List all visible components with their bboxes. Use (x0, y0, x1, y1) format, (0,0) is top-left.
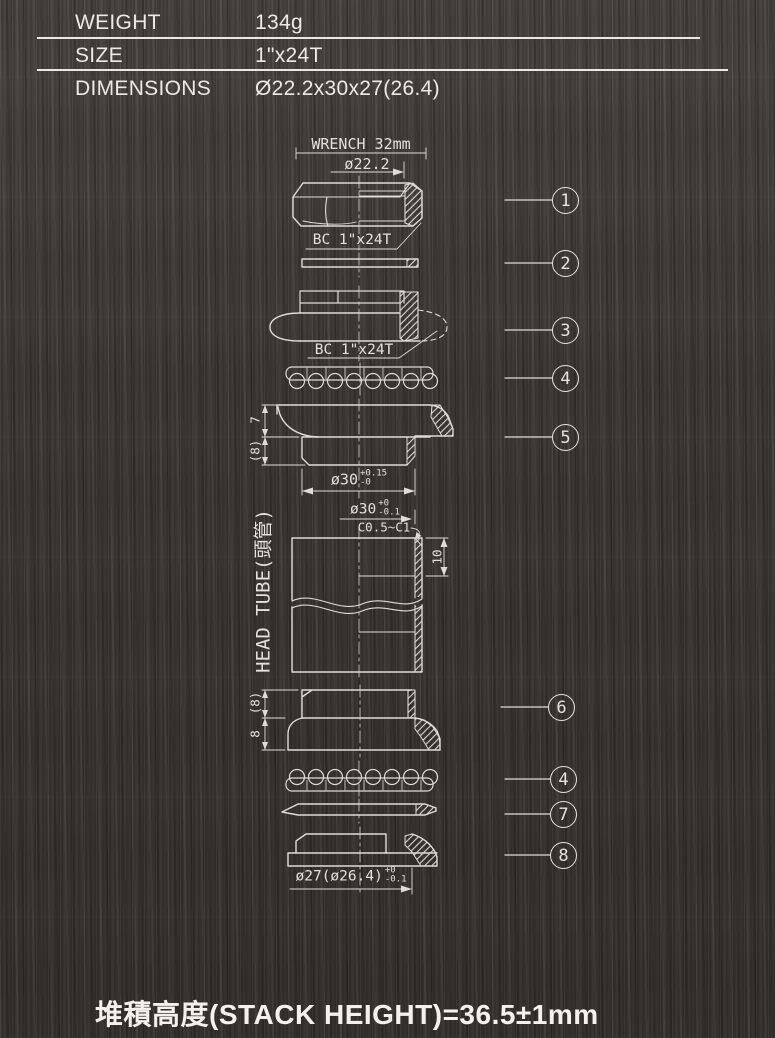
callout-2: 2 (552, 250, 579, 277)
part-washer (302, 259, 418, 267)
dim-lower-cup-8: 8 (248, 730, 263, 738)
callout-4-lower: 4 (550, 766, 577, 793)
dim-cup-height-7: 7 (248, 416, 263, 424)
callout-5: 5 (552, 424, 579, 451)
dim-bore-depth-10: 10 (430, 549, 445, 564)
thread-note-race: BC 1"x24T (315, 342, 394, 358)
part-lower-cup (262, 690, 440, 750)
dim-cup-height-8ref: (8) (248, 440, 263, 463)
callout-6: 6 (548, 694, 575, 721)
dim-cup-press-dia: ø30+0.15-0 (331, 471, 387, 490)
dim-tube-bore-dia: ø30+0-0.1 (350, 501, 400, 520)
part-ball-retainer-upper (286, 367, 438, 389)
dim-lower-cup-8ref: (8) (248, 692, 263, 715)
callout-3: 3 (552, 317, 579, 344)
callout-leader-lines (501, 200, 552, 855)
center-lines (359, 176, 360, 894)
stack-height-note: 堆積高度(STACK HEIGHT)=36.5±1mm (95, 993, 599, 1033)
callout-1: 1 (552, 187, 579, 214)
callout-7: 7 (550, 801, 577, 828)
head-tube-label: HEAD TUBE(頭管) (249, 509, 276, 673)
thread-note-locknut: BC 1"x24T (313, 232, 392, 248)
dim-dia22: ø22.2 (344, 155, 389, 173)
part-ball-retainer-lower (286, 770, 438, 792)
headset-spec-sheet: WEIGHT 134g SIZE 1"x24T DIMENSIONS Ø22.2… (0, 0, 775, 1038)
dim-crown-race-dia: ø27(ø26.4)+0-0.1 (296, 868, 407, 887)
callout-4-upper: 4 (552, 365, 579, 392)
dim-wrench: WRENCH 32mm (311, 135, 410, 153)
callout-8: 8 (550, 842, 577, 869)
chamfer-note: C0.5~C1 (358, 520, 411, 535)
